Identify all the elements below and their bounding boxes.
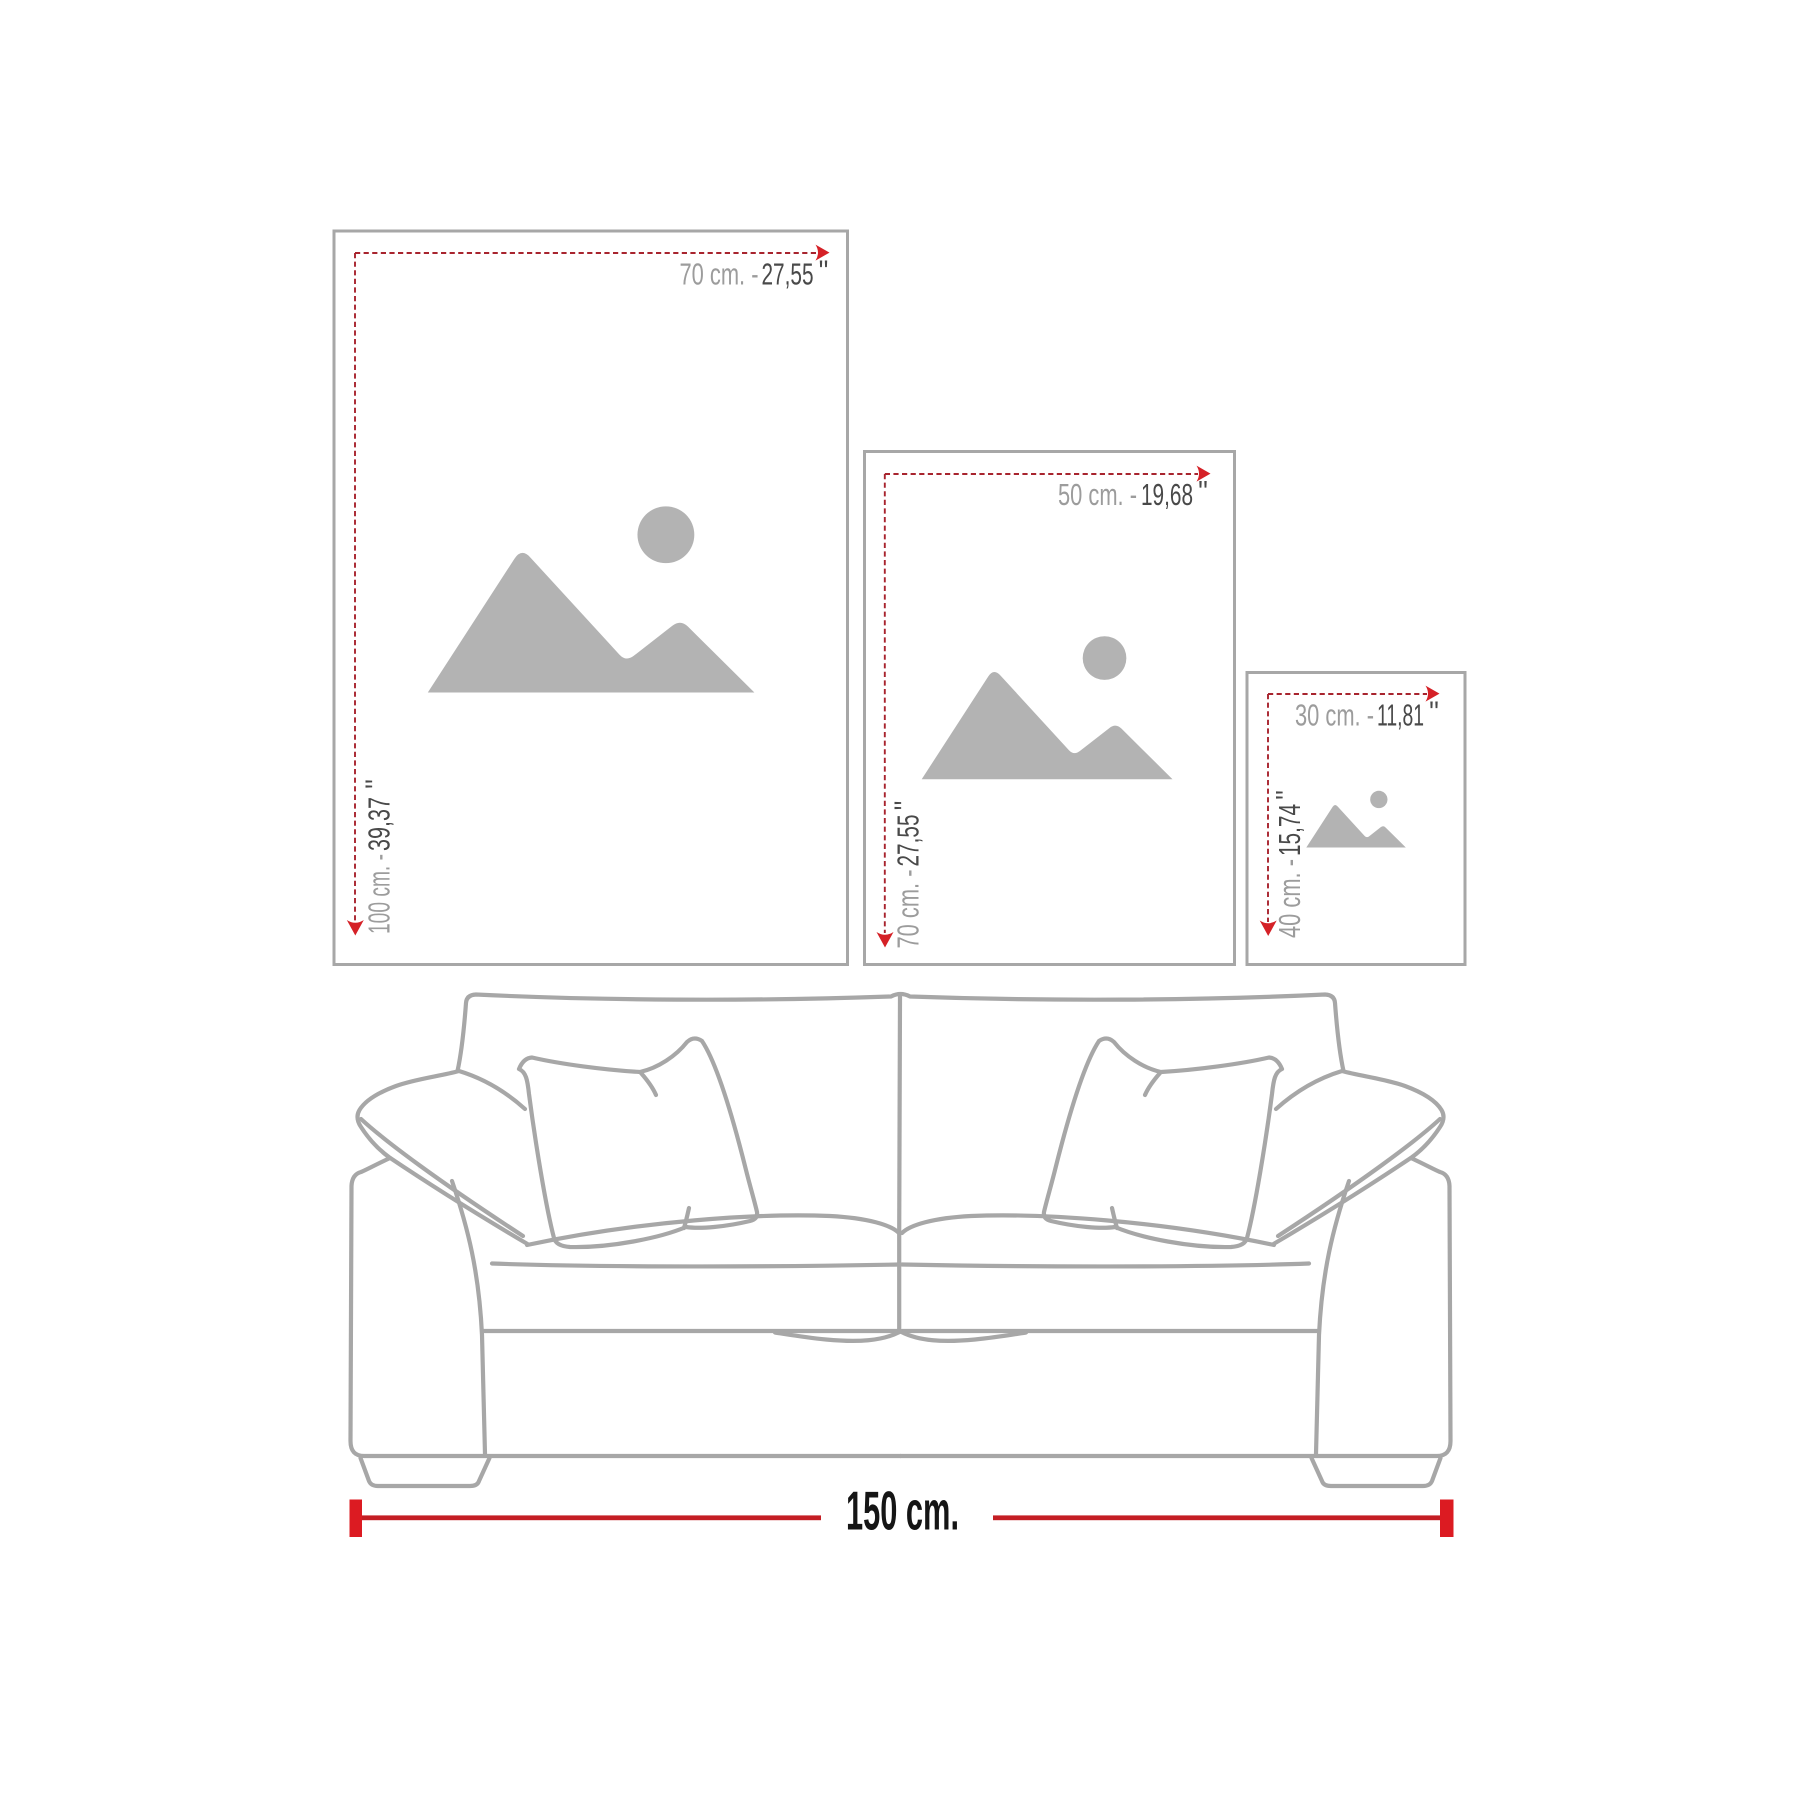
svg-text:100 cm. -: 100 cm. - xyxy=(362,854,397,934)
svg-text:'': '' xyxy=(888,801,923,811)
svg-text:150 cm.: 150 cm. xyxy=(846,1480,959,1542)
svg-text:70 cm. -: 70 cm. - xyxy=(680,257,759,292)
svg-text:'': '' xyxy=(1269,790,1304,800)
svg-text:39,37: 39,37 xyxy=(362,797,397,851)
svg-text:'': '' xyxy=(819,254,829,289)
svg-text:'': '' xyxy=(359,779,394,789)
svg-text:27,55: 27,55 xyxy=(891,815,926,867)
svg-text:70 cm. -: 70 cm. - xyxy=(891,870,926,949)
svg-text:40 cm. -: 40 cm. - xyxy=(1272,859,1307,938)
svg-text:11,81: 11,81 xyxy=(1377,698,1424,733)
svg-text:50 cm. -: 50 cm. - xyxy=(1058,477,1137,512)
svg-text:15,74: 15,74 xyxy=(1272,804,1307,856)
svg-text:30 cm. -: 30 cm. - xyxy=(1295,698,1374,733)
svg-text:'': '' xyxy=(1429,695,1439,730)
svg-text:'': '' xyxy=(1198,474,1208,509)
svg-text:27,55: 27,55 xyxy=(762,257,814,292)
svg-text:19,68: 19,68 xyxy=(1141,477,1193,512)
